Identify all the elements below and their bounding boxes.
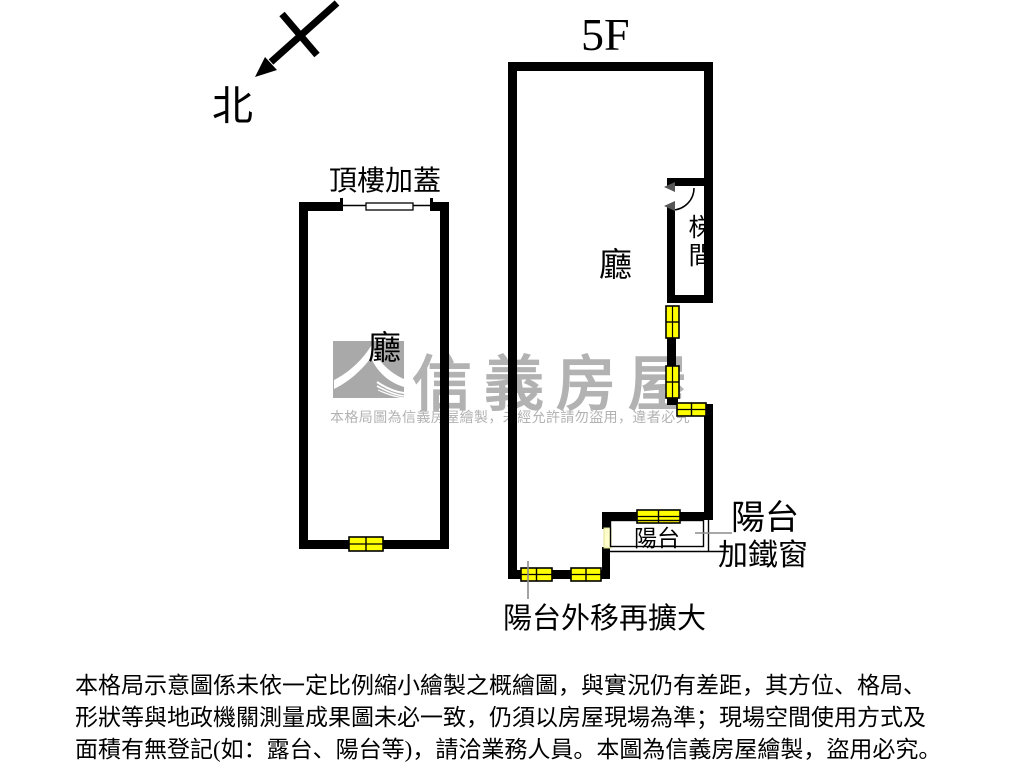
stairwell-label: 梯間 <box>680 214 716 270</box>
left-unit-room-label: 廳 <box>368 321 401 369</box>
balcony-callout-line2: 加鐵窗 <box>718 540 808 572</box>
disclaimer-line-1: 本格局示意圖係未依一定比例縮小繪製之概繪圖，與實況仍有差距，其方位、格局、 <box>75 670 955 702</box>
disclaimer-line-2: 形狀等與地政機關測量成果圖未必一致，仍須以房屋現場為準；現場空間使用方式及 <box>75 702 955 734</box>
floorplan-page: 信義房屋 本格局圖為信義房屋繪製，未經允許請勿盜用，違者必究 <box>0 0 1024 768</box>
disclaimer-text: 本格局示意圖係未依一定比例縮小繪製之概繪圖，與實況仍有差距，其方位、格局、 形狀… <box>75 670 955 766</box>
expanded-balcony-callout-label: 陽台外移再擴大 <box>503 595 706 637</box>
right-unit-room-label: 廳 <box>599 238 632 286</box>
left-unit-title: 頂樓加蓋 <box>329 159 441 199</box>
disclaimer-line-3: 面積有無登記(如：露台、陽台等)，請洽業務人員。本圖為信義房屋繪製，盜用必究。 <box>75 734 955 766</box>
balcony-label: 陽台 <box>634 519 680 553</box>
balcony-callout-line1: 陽台 <box>731 501 799 537</box>
north-label: 北 <box>212 72 253 132</box>
label-layer: 北 5F 頂樓加蓋 廳 廳 梯間 陽台 陽台 加鐵窗 陽台外移再擴大 <box>0 0 1024 768</box>
floor-label: 5F <box>581 8 630 61</box>
